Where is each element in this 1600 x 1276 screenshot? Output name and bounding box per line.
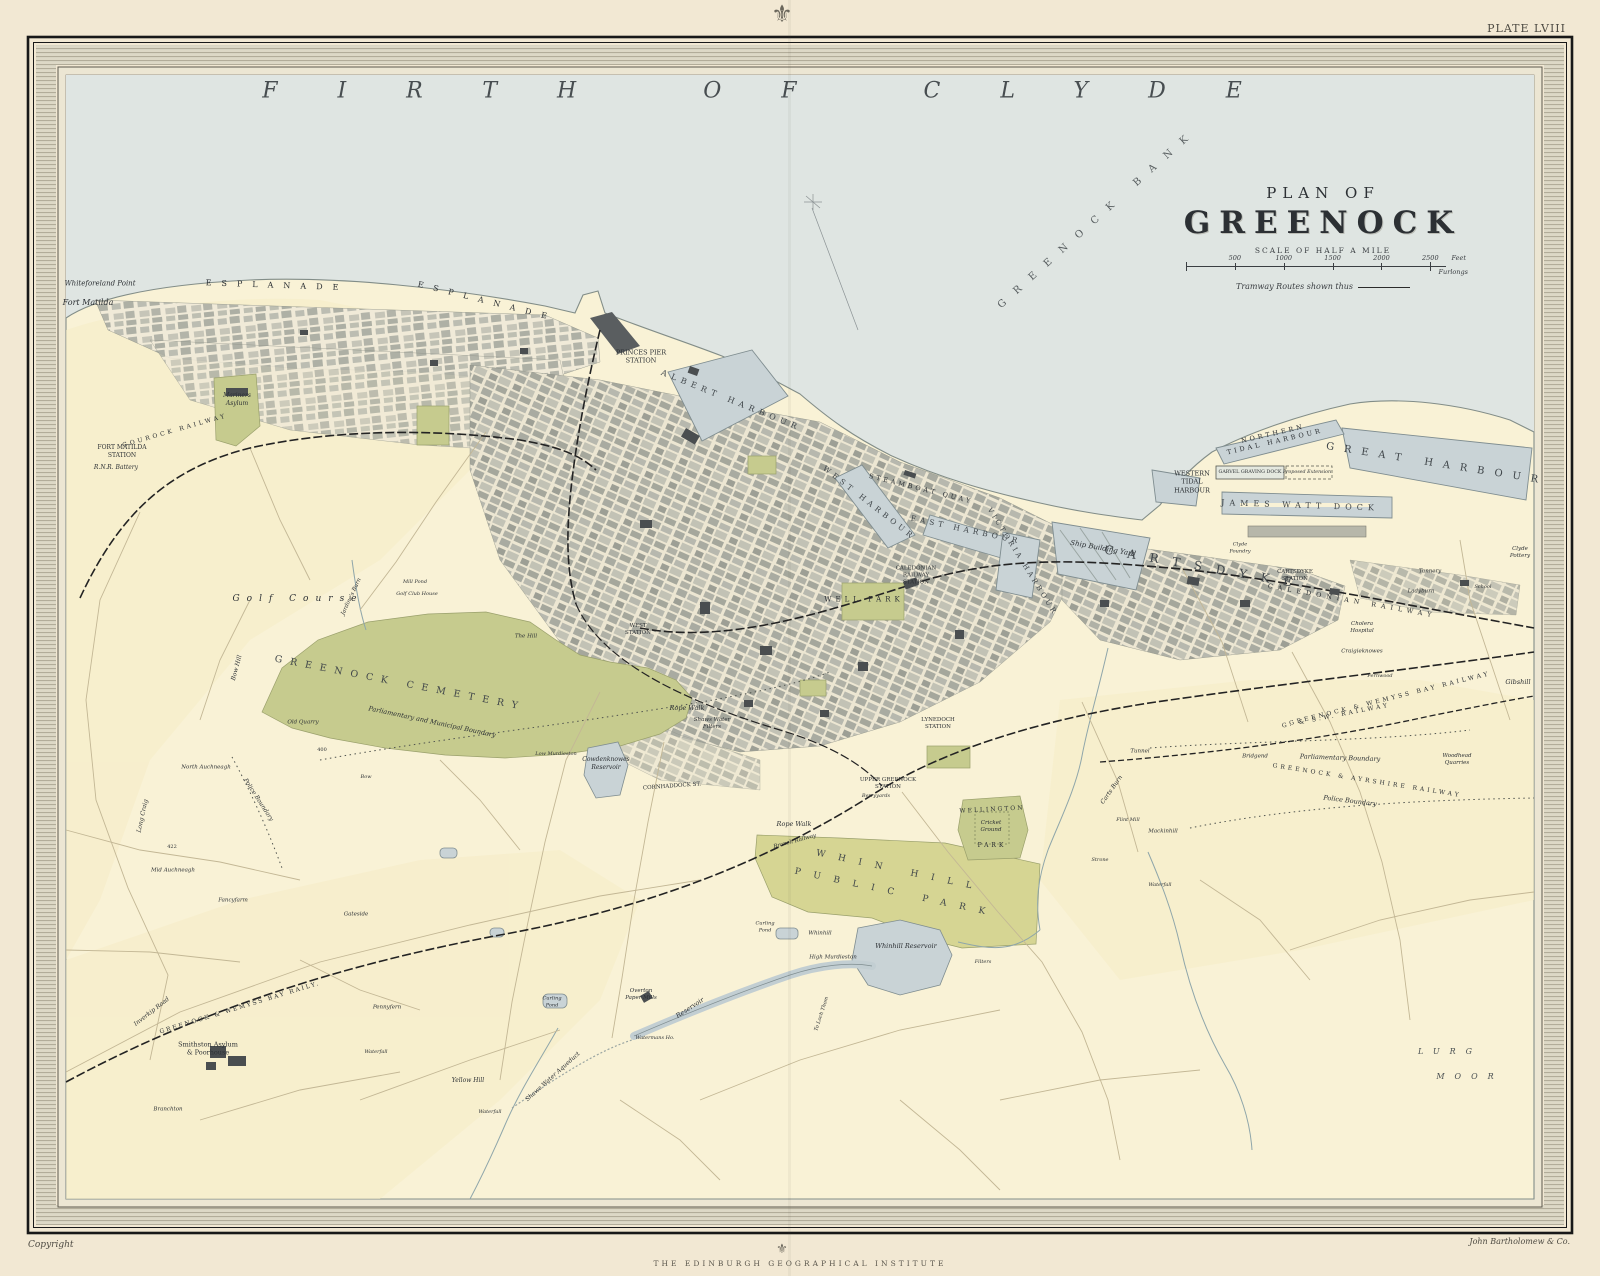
- plate-number: PLATE LVIII: [1487, 22, 1566, 35]
- map-label: Filters: [975, 959, 992, 966]
- sheet-fold-line: [788, 0, 791, 1276]
- map-label: Fort Matilda: [63, 298, 114, 308]
- map-label: Inverkip Road: [133, 996, 172, 1029]
- map-label: FIRTH OF CLYDE: [262, 78, 1302, 107]
- map-label: Pennyfern: [373, 1004, 401, 1011]
- map-label: LURG: [1418, 1047, 1482, 1057]
- map-label: Carts Burn: [1099, 774, 1125, 806]
- map-label: OvertonPaper Mills: [625, 988, 657, 1002]
- map-label: Parliamentary Boundary: [1300, 752, 1381, 763]
- map-label: NORTHERNTIDAL HARBOUR: [1224, 419, 1323, 457]
- map-label: Ladyburn: [1408, 588, 1435, 595]
- scale-bar: 5001000150020002500FeetFurlongs: [1186, 258, 1460, 276]
- map-label: Parliamentary and Municipal Boundary: [368, 704, 497, 739]
- map-label: UPPER GREENOCKSTATION: [860, 777, 916, 791]
- title-block: PLAN OF GREENOCK SCALE OF HALF A MILE 50…: [1178, 184, 1468, 291]
- map-label: Smithston Asylum& Poorhouse: [178, 1041, 238, 1058]
- map-label: GREENOCK CEMETERY: [273, 654, 526, 715]
- map-label: Mackinhill: [1148, 828, 1177, 835]
- map-label: GOUROCK RAILWAY: [122, 412, 229, 449]
- map-label: Rope Walk: [777, 820, 812, 828]
- map-label: High Murdieston: [809, 954, 857, 961]
- map-label: GREAT HARBOUR: [1325, 440, 1549, 488]
- map-label: Tannery: [1419, 568, 1442, 575]
- map-label: School: [1474, 584, 1491, 591]
- map-label: Craigieknowes: [1341, 648, 1382, 655]
- map-label: PRINCES PIERSTATION: [616, 349, 666, 366]
- map-label: Old Quarry: [287, 719, 318, 726]
- map-label: Whinhill Reservoir: [875, 942, 936, 950]
- map-label: Fernwood: [1367, 673, 1392, 680]
- institute-imprint: THE EDINBURGH GEOGRAPHICAL INSTITUTE: [0, 1259, 1600, 1268]
- map-label: Shaws WaterFilters: [694, 717, 730, 731]
- map-label: GREENOCK & AYRSHIRE RAILWAY: [1272, 762, 1462, 800]
- map-label: CALEDONIANRAILWAYSTATION: [896, 565, 937, 586]
- scale-tick-label: 2000: [1373, 254, 1390, 262]
- map-label: MarinersAsylum: [223, 392, 251, 408]
- map-label: 422: [167, 844, 177, 851]
- copyright-note: Copyright: [28, 1240, 74, 1250]
- map-label: GREENOCK & WEMYSS BAY RAILY.: [159, 980, 321, 1036]
- map-label: Yellow Hill: [452, 1077, 484, 1085]
- scale-tick-label: 500: [1229, 254, 1241, 262]
- scale-tick-label: 1500: [1324, 254, 1341, 262]
- map-sheet: FIRTH OF CLYDEGREENOCK BANKWhiteforeland…: [0, 0, 1600, 1276]
- map-label: Long Craig: [136, 799, 151, 834]
- map-label: MOOR: [1436, 1072, 1503, 1082]
- map-label: CholeraHospital: [1350, 621, 1373, 635]
- title-kicker: PLAN OF: [1178, 184, 1468, 202]
- map-label: North Auchneagh: [181, 764, 231, 771]
- map-label: WELLINGTON: [959, 804, 1024, 815]
- map-label: STEAMBOAT QUAY: [868, 472, 974, 506]
- map-label: CurlingPond: [542, 996, 561, 1009]
- map-label: Berryyards: [862, 793, 890, 800]
- map-label: Bow Hill: [230, 654, 244, 681]
- publisher-imprint: John Bartholomew & Co.: [1469, 1237, 1570, 1246]
- scale-unit-furlongs: Furlongs: [1439, 268, 1468, 276]
- map-label: LYNEDOCHSTATION: [921, 717, 955, 731]
- map-label: VICTORIA HARBOUR: [985, 506, 1059, 617]
- map-label: JAMES WATT DOCK: [1221, 498, 1379, 514]
- crest-ornament-top: ⚜: [762, 2, 802, 26]
- map-label: Waterfall: [478, 1109, 501, 1116]
- map-label: GREENOCK BANK: [995, 124, 1201, 311]
- map-label: CORNHADDOCK ST.: [643, 781, 702, 792]
- map-label: CricketGround: [981, 820, 1002, 834]
- map-label: The Hill: [515, 633, 537, 640]
- map-label: R.N.R. Battery: [94, 464, 138, 472]
- map-title: GREENOCK: [1178, 205, 1468, 241]
- map-label: Mill Pond: [403, 579, 427, 586]
- map-label: ESPLANADE: [205, 278, 348, 293]
- map-label: CurlingPond: [755, 921, 774, 934]
- map-label: ESPLANADE: [416, 280, 557, 325]
- map-label: Police Boundary: [1323, 794, 1377, 809]
- scale-tick-label: 2500: [1422, 254, 1439, 262]
- map-label: Gibshill: [1505, 678, 1530, 686]
- scale-unit-feet: Feet: [1452, 254, 1466, 262]
- map-label: Bridgend: [1242, 753, 1268, 760]
- map-label: Police Boundary: [241, 777, 274, 823]
- map-label: Waterfall: [1148, 882, 1171, 889]
- map-label: WoodheadQuarries: [1442, 753, 1471, 767]
- map-label: Tunnel: [1130, 748, 1149, 755]
- map-label: Rope Walk: [670, 704, 705, 712]
- map-label: Strone: [1091, 857, 1108, 864]
- map-label: ALBERT HARBOUR: [659, 368, 803, 434]
- map-label: GARVEL GRAVING DOCK: [1218, 470, 1281, 476]
- map-label: To Loch Thom: [813, 996, 830, 1032]
- map-label: PARK: [978, 842, 1007, 850]
- map-label: Branchton: [153, 1106, 182, 1113]
- tramway-line-sample: [1358, 287, 1410, 288]
- map-label: Waterfall: [364, 1049, 387, 1056]
- map-label: Reservoir: [674, 996, 705, 1020]
- scale-tick-label: 1000: [1275, 254, 1292, 262]
- map-label: Whiteforeland Point: [64, 279, 135, 288]
- map-label: ClydePottery: [1510, 546, 1530, 560]
- map-label: Golf Club House: [396, 591, 438, 598]
- map-label: Shaws Water Aqueduct: [524, 1050, 582, 1103]
- map-label: Proposed Extension: [1283, 470, 1331, 476]
- tramway-note-text: Tramway Routes shown thus: [1236, 282, 1353, 291]
- map-label: WESTERNTIDALHARBOUR: [1174, 469, 1210, 494]
- tramway-note: Tramway Routes shown thus: [1178, 282, 1468, 291]
- map-label: Mid Auchneagh: [151, 867, 195, 874]
- map-label: Watermans Ho.: [635, 1035, 674, 1042]
- map-label: ClydeFoundry: [1229, 542, 1250, 555]
- map-label: Fancyfarm: [218, 897, 248, 904]
- map-label: WESTSTATION: [625, 623, 651, 637]
- map-label: Gateside: [344, 911, 369, 918]
- map-label: Low Murdieston: [535, 751, 577, 758]
- map-label: Branch Railway: [773, 833, 817, 851]
- map-label: Flint Mill: [1116, 817, 1139, 824]
- map-label: CARTSDYKESTATION: [1277, 569, 1313, 583]
- map-label: CowdenknowesReservoir: [582, 756, 629, 772]
- map-label: WELL PARK: [824, 595, 903, 604]
- map-label: 400: [317, 747, 327, 754]
- map-label: Bow: [361, 774, 372, 781]
- map-label: Whinhill: [808, 930, 831, 937]
